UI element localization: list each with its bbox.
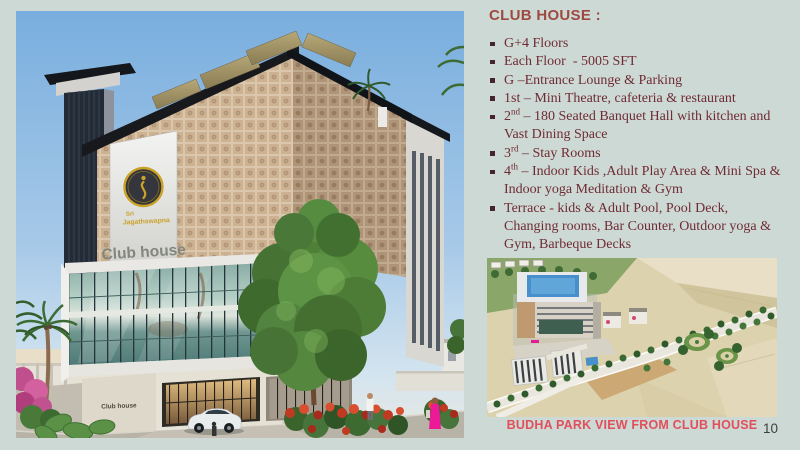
entrance-sign-text: Club house bbox=[101, 402, 137, 410]
list-item: Each Floor - 5005 SFT bbox=[489, 53, 781, 71]
list-item: Terrace - kids & Adult Pool, Pool Deck, … bbox=[489, 200, 781, 255]
bullet-marker bbox=[490, 60, 495, 65]
list-item: 1st – Mini Theatre, cafeteria & restaura… bbox=[489, 90, 781, 108]
aerial-pink-sign bbox=[531, 340, 539, 343]
bullet-marker bbox=[490, 78, 495, 83]
bullet-marker bbox=[490, 206, 495, 211]
list-item: G+4 Floors bbox=[489, 35, 781, 53]
pedestrian bbox=[367, 393, 374, 420]
list-item: 3rd – Stay Rooms bbox=[489, 145, 781, 163]
bullet-marker bbox=[490, 115, 495, 120]
bullet-marker bbox=[490, 170, 495, 175]
presentation-slide: Sri Jagathswapna Club house bbox=[0, 0, 800, 450]
page-number: 10 bbox=[763, 421, 778, 436]
small-figure bbox=[212, 422, 217, 436]
bullet-marker bbox=[490, 151, 495, 156]
logo-text-sri: Sri bbox=[126, 210, 135, 217]
list-item: 2nd – 180 Seated Banquet Hall with kitch… bbox=[489, 108, 781, 145]
park-aerial-image bbox=[487, 258, 777, 417]
list-item: 4th – Indoor Kids ,Adult Play Area & Min… bbox=[489, 163, 781, 200]
club-logo-icon bbox=[125, 168, 163, 206]
feature-list: G+4 Floors Each Floor - 5005 SFT G –Entr… bbox=[489, 35, 781, 255]
slide-title: CLUB HOUSE : bbox=[489, 7, 601, 24]
bullet-marker bbox=[490, 96, 495, 101]
list-item: G –Entrance Lounge & Parking bbox=[489, 72, 781, 90]
building-render-image: Sri Jagathswapna Club house bbox=[16, 11, 464, 438]
bullet-marker bbox=[490, 42, 495, 47]
image-caption: BUDHA PARK VIEW FROM CLUB HOUSE bbox=[487, 418, 777, 432]
